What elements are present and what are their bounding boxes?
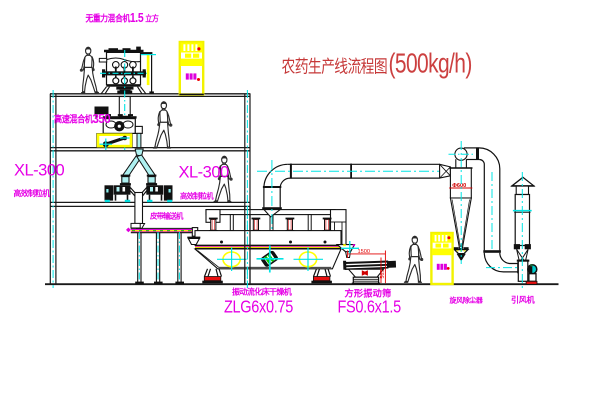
svg-text:ZLG6x0.75: ZLG6x0.75 — [224, 298, 293, 316]
svg-text:旋风除尘器: 旋风除尘器 — [449, 295, 484, 304]
svg-text:1500: 1500 — [358, 249, 370, 255]
svg-text:(500kg/h): (500kg/h) — [389, 49, 472, 80]
svg-text:高效制粒机: 高效制粒机 — [14, 188, 51, 198]
svg-text:565: 565 — [380, 270, 386, 279]
svg-text:方形振动筛: 方形振动筛 — [345, 288, 392, 299]
svg-text:皮带输送机: 皮带输送机 — [149, 212, 184, 221]
svg-text:高效制粒机: 高效制粒机 — [180, 192, 214, 201]
svg-text:农药生产线流程图: 农药生产线流程图 — [282, 57, 388, 77]
svg-text:高速混合机350: 高速混合机350 — [54, 111, 111, 126]
svg-text:无重力混合机1.5立方: 无重力混合机1.5立方 — [85, 12, 159, 26]
svg-text:引风机: 引风机 — [511, 294, 535, 304]
svg-text:XL-300: XL-300 — [14, 162, 65, 180]
svg-text:Φ600: Φ600 — [452, 183, 466, 189]
svg-text:XL-300: XL-300 — [179, 164, 230, 182]
svg-text:振动流化床干燥机: 振动流化床干燥机 — [232, 286, 292, 296]
svg-text:FS0.6x1.5: FS0.6x1.5 — [338, 298, 402, 316]
